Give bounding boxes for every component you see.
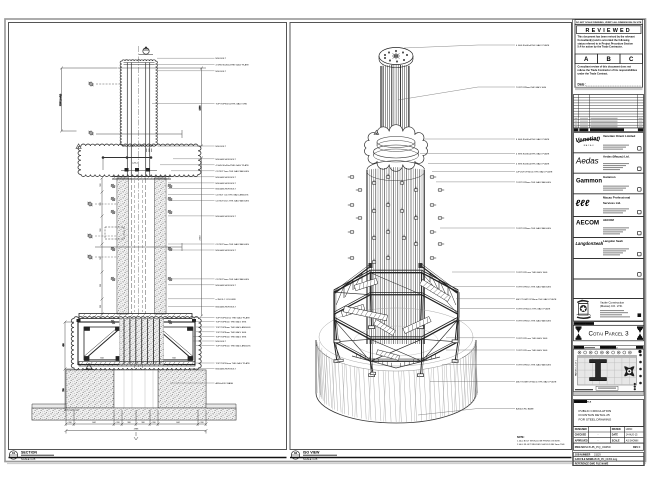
svg-text:A350x6 RC BASE: A350x6 RC BASE <box>516 408 534 411</box>
svg-text:(Macau) CO. LTD.: (Macau) CO. LTD. <box>600 304 623 308</box>
svg-text:DWG NO: DWG NO <box>575 446 585 449</box>
svg-text:APPROVED: APPROVED <box>575 439 588 442</box>
svg-text:TOP/TOP8mm THK GALV ANGLES: TOP/TOP8mm THK GALV ANGLES <box>516 320 552 323</box>
svg-text:Langdon Seah: Langdon Seah <box>603 239 623 243</box>
svg-text:02: 02 <box>294 451 298 455</box>
svg-text:CDT/DT7mm THK GALV ANGLES: CDT/DT7mm THK GALV ANGLES <box>216 170 250 173</box>
svg-text:01: 01 <box>12 451 16 455</box>
svg-text:under the Trade Contract.: under the Trade Contract. <box>578 72 609 75</box>
svg-text:2. ALL FILLET WELDED SHOULD BE: 2. ALL FILLET WELDED SHOULD BE 3mm THK. <box>517 443 565 446</box>
svg-text:M16 ANCHOR BOLT: M16 ANCHOR BOLT <box>216 176 237 179</box>
svg-text:4BOTTOM/TOP30mm THK GALV PLATE: 4BOTTOM/TOP30mm THK GALV PLATE <box>516 381 557 384</box>
svg-text:DATE: DATE <box>612 434 619 437</box>
svg-text:TOP/TOP8mm THK GALV ANGLES: TOP/TOP8mm THK GALV ANGLES <box>216 345 252 348</box>
svg-text:TOP/TOP8mm THK GALV ANGLES: TOP/TOP8mm THK GALV ANGLES <box>516 286 552 289</box>
svg-text:TOP/TOP8 mm THK GALV SHS: TOP/TOP8 mm THK GALV SHS <box>516 271 548 274</box>
svg-text:NOTE:: NOTE: <box>517 436 525 439</box>
svg-text:TOP/TOP30mm THK GALV PLATE: TOP/TOP30mm THK GALV PLATE <box>216 362 251 365</box>
svg-text:TOP/TOP30mm THK GALV PLATE: TOP/TOP30mm THK GALV PLATE <box>516 308 551 311</box>
svg-text:Services Ltd.: Services Ltd. <box>603 201 621 205</box>
svg-text:TOP/TOP30mm THK GALV PLATE: TOP/TOP30mm THK GALV PLATE <box>216 317 251 320</box>
svg-text:TOP/TOP8 mm THK GALV SHS: TOP/TOP8 mm THK GALV SHS <box>516 349 548 352</box>
svg-text:S15UB_PQ_00450: S15UB_PQ_00450 <box>585 445 611 449</box>
svg-text:TOP/TOP8mm THK GALV SHS: TOP/TOP8mm THK GALV SHS <box>216 321 247 324</box>
svg-text:JOB NUMBER: JOB NUMBER <box>575 455 591 457</box>
svg-text:TOP/TOP8 mm THK GALV SHS: TOP/TOP8 mm THK GALV SHS <box>516 337 548 340</box>
svg-text:14-AUG-15: 14-AUG-15 <box>626 434 638 437</box>
svg-text:REV C: REV C <box>633 446 641 449</box>
svg-text:CDT/DT mm THK GALV ANGLES: CDT/DT mm THK GALV ANGLES <box>216 194 249 197</box>
svg-text:M16 ANCHOR BOLT: M16 ANCHOR BOLT <box>216 305 237 308</box>
svg-text:CDT/DT5mm THK GALV ANGLES: CDT/DT5mm THK GALV ANGLES <box>216 243 250 246</box>
svg-text:4 SHS 90x90x4THK GALV PLATE: 4 SHS 90x90x4THK GALV PLATE <box>516 153 550 156</box>
svg-text:AECOM: AECOM <box>603 218 614 222</box>
svg-text:A: A <box>584 57 589 63</box>
svg-text:DESIGNED: DESIGNED <box>575 429 587 431</box>
svg-text:4BOTTOM/TOP30mm THK GALV PLATE: 4BOTTOM/TOP30mm THK GALV PLATE <box>516 298 557 301</box>
svg-text:REFERENCE DWG FILE NAME: REFERENCE DWG FILE NAME <box>575 462 609 465</box>
svg-text:SCALE: SCALE <box>612 439 620 442</box>
svg-text:TOP/TOP90mmTHK GALV SHS: TOP/TOP90mmTHK GALV SHS <box>216 103 248 106</box>
svg-text:L=M+J: L=M+J <box>132 163 138 165</box>
svg-text:4 SHS 90x90x4THK GALV PLATE: 4 SHS 90x90x4THK GALV PLATE <box>216 63 250 66</box>
svg-text:CAD FILE NAME: CAD FILE NAME <box>575 458 593 461</box>
svg-text:DRAWING TITLE: DRAWING TITLE <box>575 401 592 404</box>
svg-text:TOP/TOP8mm THK GALV ANGLES: TOP/TOP8mm THK GALV ANGLES <box>216 326 252 329</box>
svg-text:B: B <box>607 57 612 63</box>
svg-text:PARCEL 1, LOT 1: PARCEL 1, LOT 1 <box>575 359 578 376</box>
svg-text:4 SHS 90x90x4THK GALV PLATE: 4 SHS 90x90x4THK GALV PLATE <box>216 164 250 167</box>
svg-text:MACAU: MACAU <box>584 144 595 147</box>
svg-text:M16 BOLT: M16 BOLT <box>216 341 227 343</box>
svg-text:Aedas: Aedas <box>575 157 599 166</box>
svg-text:TOP/TOP8mm THK GALV ANGLES: TOP/TOP8mm THK GALV ANGLES <box>516 181 552 184</box>
svg-text:REVIEWED: REVIEWED <box>586 28 632 34</box>
svg-text:M16 ANCHOR BOLT: M16 ANCHOR BOLT <box>216 188 237 191</box>
svg-text:CDT/DT5mm THK GALV ANGLES: CDT/DT5mm THK GALV ANGLES <box>216 278 250 281</box>
svg-text:4 SHS 90x90x4THK GALV PLATE: 4 SHS 90x90x4THK GALV PLATE <box>516 44 550 47</box>
svg-text:COTAI PARCEL 3: COTAI PARCEL 3 <box>588 330 629 337</box>
svg-text:4 SHS 90x90x4THK GALV PLATE: 4 SHS 90x90x4THK GALV PLATE <box>516 163 550 166</box>
svg-text:DRAWN: DRAWN <box>612 428 621 431</box>
svg-text:Aedas (Macau) Ltd.: Aedas (Macau) Ltd. <box>603 154 630 158</box>
svg-text:Gammon: Gammon <box>603 175 616 179</box>
svg-text:Date :: Date : <box>578 83 587 87</box>
svg-text:SECTION: SECTION <box>21 451 37 455</box>
svg-text:1. ALL BOLT SHOULD BE FIXING O: 1. ALL BOLT SHOULD BE FIXING ON SITE. <box>517 440 561 443</box>
svg-text:1286: 1286 <box>200 105 202 111</box>
svg-text:1286 (verify): 1286 (verify) <box>59 94 62 106</box>
svg-text:4 SHS 90x90x4THK GALV PLATE: 4 SHS 90x90x4THK GALV PLATE <box>516 138 550 141</box>
svg-text:LangdonSeah: LangdonSeah <box>576 241 604 246</box>
svg-text:CHECKED: CHECKED <box>575 435 587 437</box>
svg-text:S15UB_PD_00450.dwg: S15UB_PD_00450.dwg <box>592 458 618 461</box>
svg-text:M16 BOLT: M16 BOLT <box>216 146 227 148</box>
svg-text:A350x6 RC BASE: A350x6 RC BASE <box>216 382 234 385</box>
svg-text:TOP/TOP8mm THK GALV ANGLES: TOP/TOP8mm THK GALV ANGLES <box>516 364 552 367</box>
svg-text:AS SHOWN: AS SHOWN <box>626 439 639 442</box>
svg-text:2360: 2360 <box>200 235 202 241</box>
svg-text:a 350 R.C COLUMN: a 350 R.C COLUMN <box>216 299 236 301</box>
svg-text:Gammon: Gammon <box>576 179 602 185</box>
svg-text:TOP/TOP8mm THK GALV SHS: TOP/TOP8mm THK GALV SHS <box>216 331 247 334</box>
svg-text:M16 ANCHOR BOLT: M16 ANCHOR BOLT <box>216 284 237 287</box>
svg-text:M16 ANCHOR BOLT: M16 ANCHOR BOLT <box>216 368 237 371</box>
svg-text:TOP/TOP8mmTHK GALV SHS: TOP/TOP8mmTHK GALV SHS <box>516 86 547 89</box>
svg-text:12PLS/TOP30mm THK GALV PLATE: 12PLS/TOP30mm THK GALV PLATE <box>516 170 553 173</box>
svg-text:Macau Professional: Macau Professional <box>603 195 630 199</box>
svg-text:C: C <box>629 57 634 63</box>
svg-text:M16 BOLT: M16 BOLT <box>216 71 227 73</box>
svg-text:M16 ANCHOR BOLT: M16 ANCHOR BOLT <box>216 215 237 218</box>
svg-text:ISO VIEW: ISO VIEW <box>303 451 320 455</box>
svg-text:M16 ANCHOR BOLT: M16 ANCHOR BOLT <box>216 158 237 161</box>
svg-text:31529: 31529 <box>594 454 601 457</box>
svg-text:M16 ANCHOR BOLT: M16 ANCHOR BOLT <box>216 249 237 252</box>
svg-text:M16 ANCHOR BOLT: M16 ANCHOR BOLT <box>216 182 237 185</box>
svg-text:M16 BOLT: M16 BOLT <box>216 58 227 60</box>
svg-text:FOR STEEL DRAWING: FOR STEEL DRAWING <box>579 417 612 421</box>
svg-text:Venetian Orient Limited: Venetian Orient Limited <box>603 134 636 138</box>
svg-text:DO NOT SCALE DRAWING, VERIFY A: DO NOT SCALE DRAWING, VERIFY ALL DIMENSI… <box>576 21 642 24</box>
svg-text:AECOM: AECOM <box>576 220 599 227</box>
svg-text:ℓℓℓ: ℓℓℓ <box>576 198 590 208</box>
svg-text:5.4 for action by the Trade Co: 5.4 for action by the Trade Contractor. <box>578 46 623 49</box>
svg-text:LWKD: LWKD <box>626 429 633 431</box>
svg-text:CDT/DT5mm THK GALV ANGLES: CDT/DT5mm THK GALV ANGLES <box>216 199 250 202</box>
svg-text:TOP/TOP8mm THK GALV ANGLES: TOP/TOP8mm THK GALV ANGLES <box>516 227 552 230</box>
svg-text:TOP/TOP8mm THK GALV SHS: TOP/TOP8mm THK GALV SHS <box>216 336 247 339</box>
